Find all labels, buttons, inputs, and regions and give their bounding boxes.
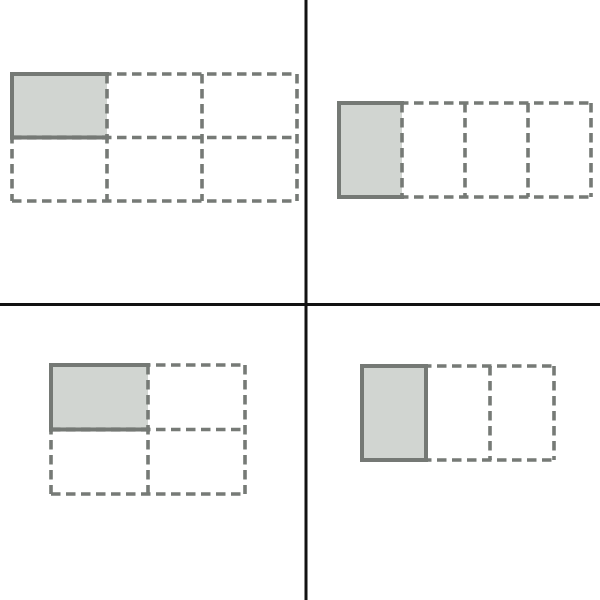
top-left-grid	[12, 74, 297, 201]
bottom-right-grid	[362, 366, 554, 460]
top-right-grid	[339, 103, 591, 197]
top-right-grid-shaded-cell	[339, 103, 402, 197]
top-left-grid-shaded-cell	[12, 74, 107, 138]
bottom-left-grid	[51, 365, 245, 494]
bottom-left-grid-shaded-cell	[51, 365, 148, 430]
fraction-grids-canvas	[0, 0, 600, 600]
fraction-models-figure	[0, 0, 600, 600]
bottom-right-grid-shaded-cell	[362, 366, 426, 460]
